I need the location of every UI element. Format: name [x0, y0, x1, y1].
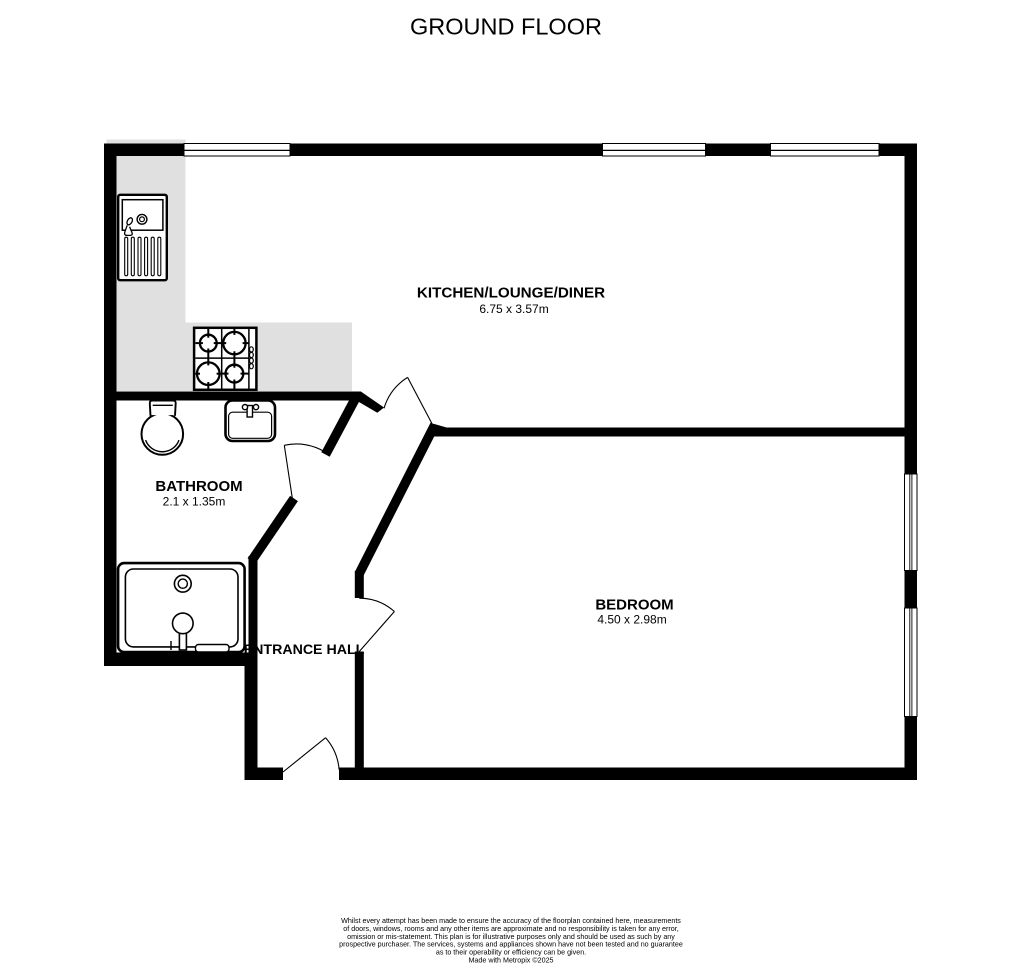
svg-text:GROUND FLOOR: GROUND FLOOR	[410, 14, 602, 40]
svg-text:omission or mis-statement. Thi: omission or mis-statement. This plan is …	[347, 933, 675, 941]
svg-text:Made with Metropix ©2025: Made with Metropix ©2025	[468, 957, 553, 965]
svg-text:prospective purchaser. The ser: prospective purchaser. The services, sys…	[339, 941, 683, 949]
svg-text:ENTRANCE HALL: ENTRANCE HALL	[244, 642, 365, 658]
svg-text:BATHROOM: BATHROOM	[155, 478, 242, 495]
svg-text:as to their operability or eff: as to their operability or efficiency ca…	[436, 949, 586, 957]
svg-text:4.50 x 2.98m: 4.50 x 2.98m	[597, 613, 666, 627]
svg-text:Whilst every attempt has been: Whilst every attempt has been made to en…	[341, 917, 681, 925]
svg-text:2.1 x 1.35m: 2.1 x 1.35m	[163, 495, 226, 509]
svg-text:6.75 x 3.57m: 6.75 x 3.57m	[479, 302, 548, 316]
svg-text:of doors, windows, rooms and a: of doors, windows, rooms and any other i…	[343, 925, 678, 933]
svg-text:BEDROOM: BEDROOM	[595, 597, 673, 614]
svg-text:KITCHEN/LOUNGE/DINER: KITCHEN/LOUNGE/DINER	[417, 285, 605, 302]
